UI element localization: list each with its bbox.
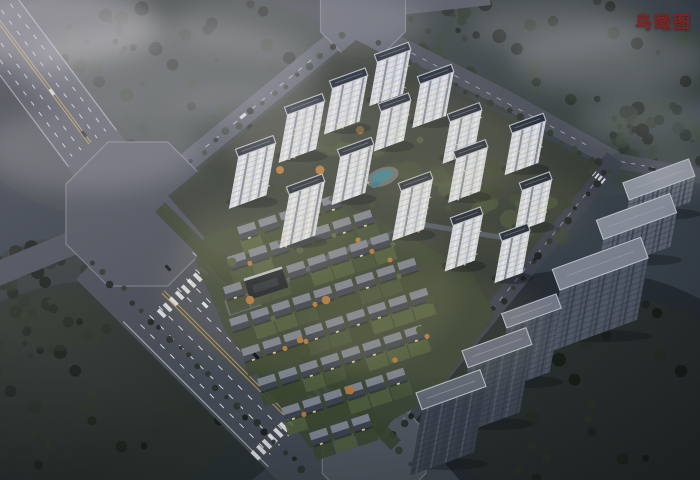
atmosphere-layer	[0, 0, 700, 480]
view-title-label: 鸟瞰图	[635, 8, 692, 33]
vignette	[0, 0, 700, 480]
scene-canvas	[0, 0, 700, 480]
birdseye-rendering: 鸟瞰图	[0, 0, 700, 480]
